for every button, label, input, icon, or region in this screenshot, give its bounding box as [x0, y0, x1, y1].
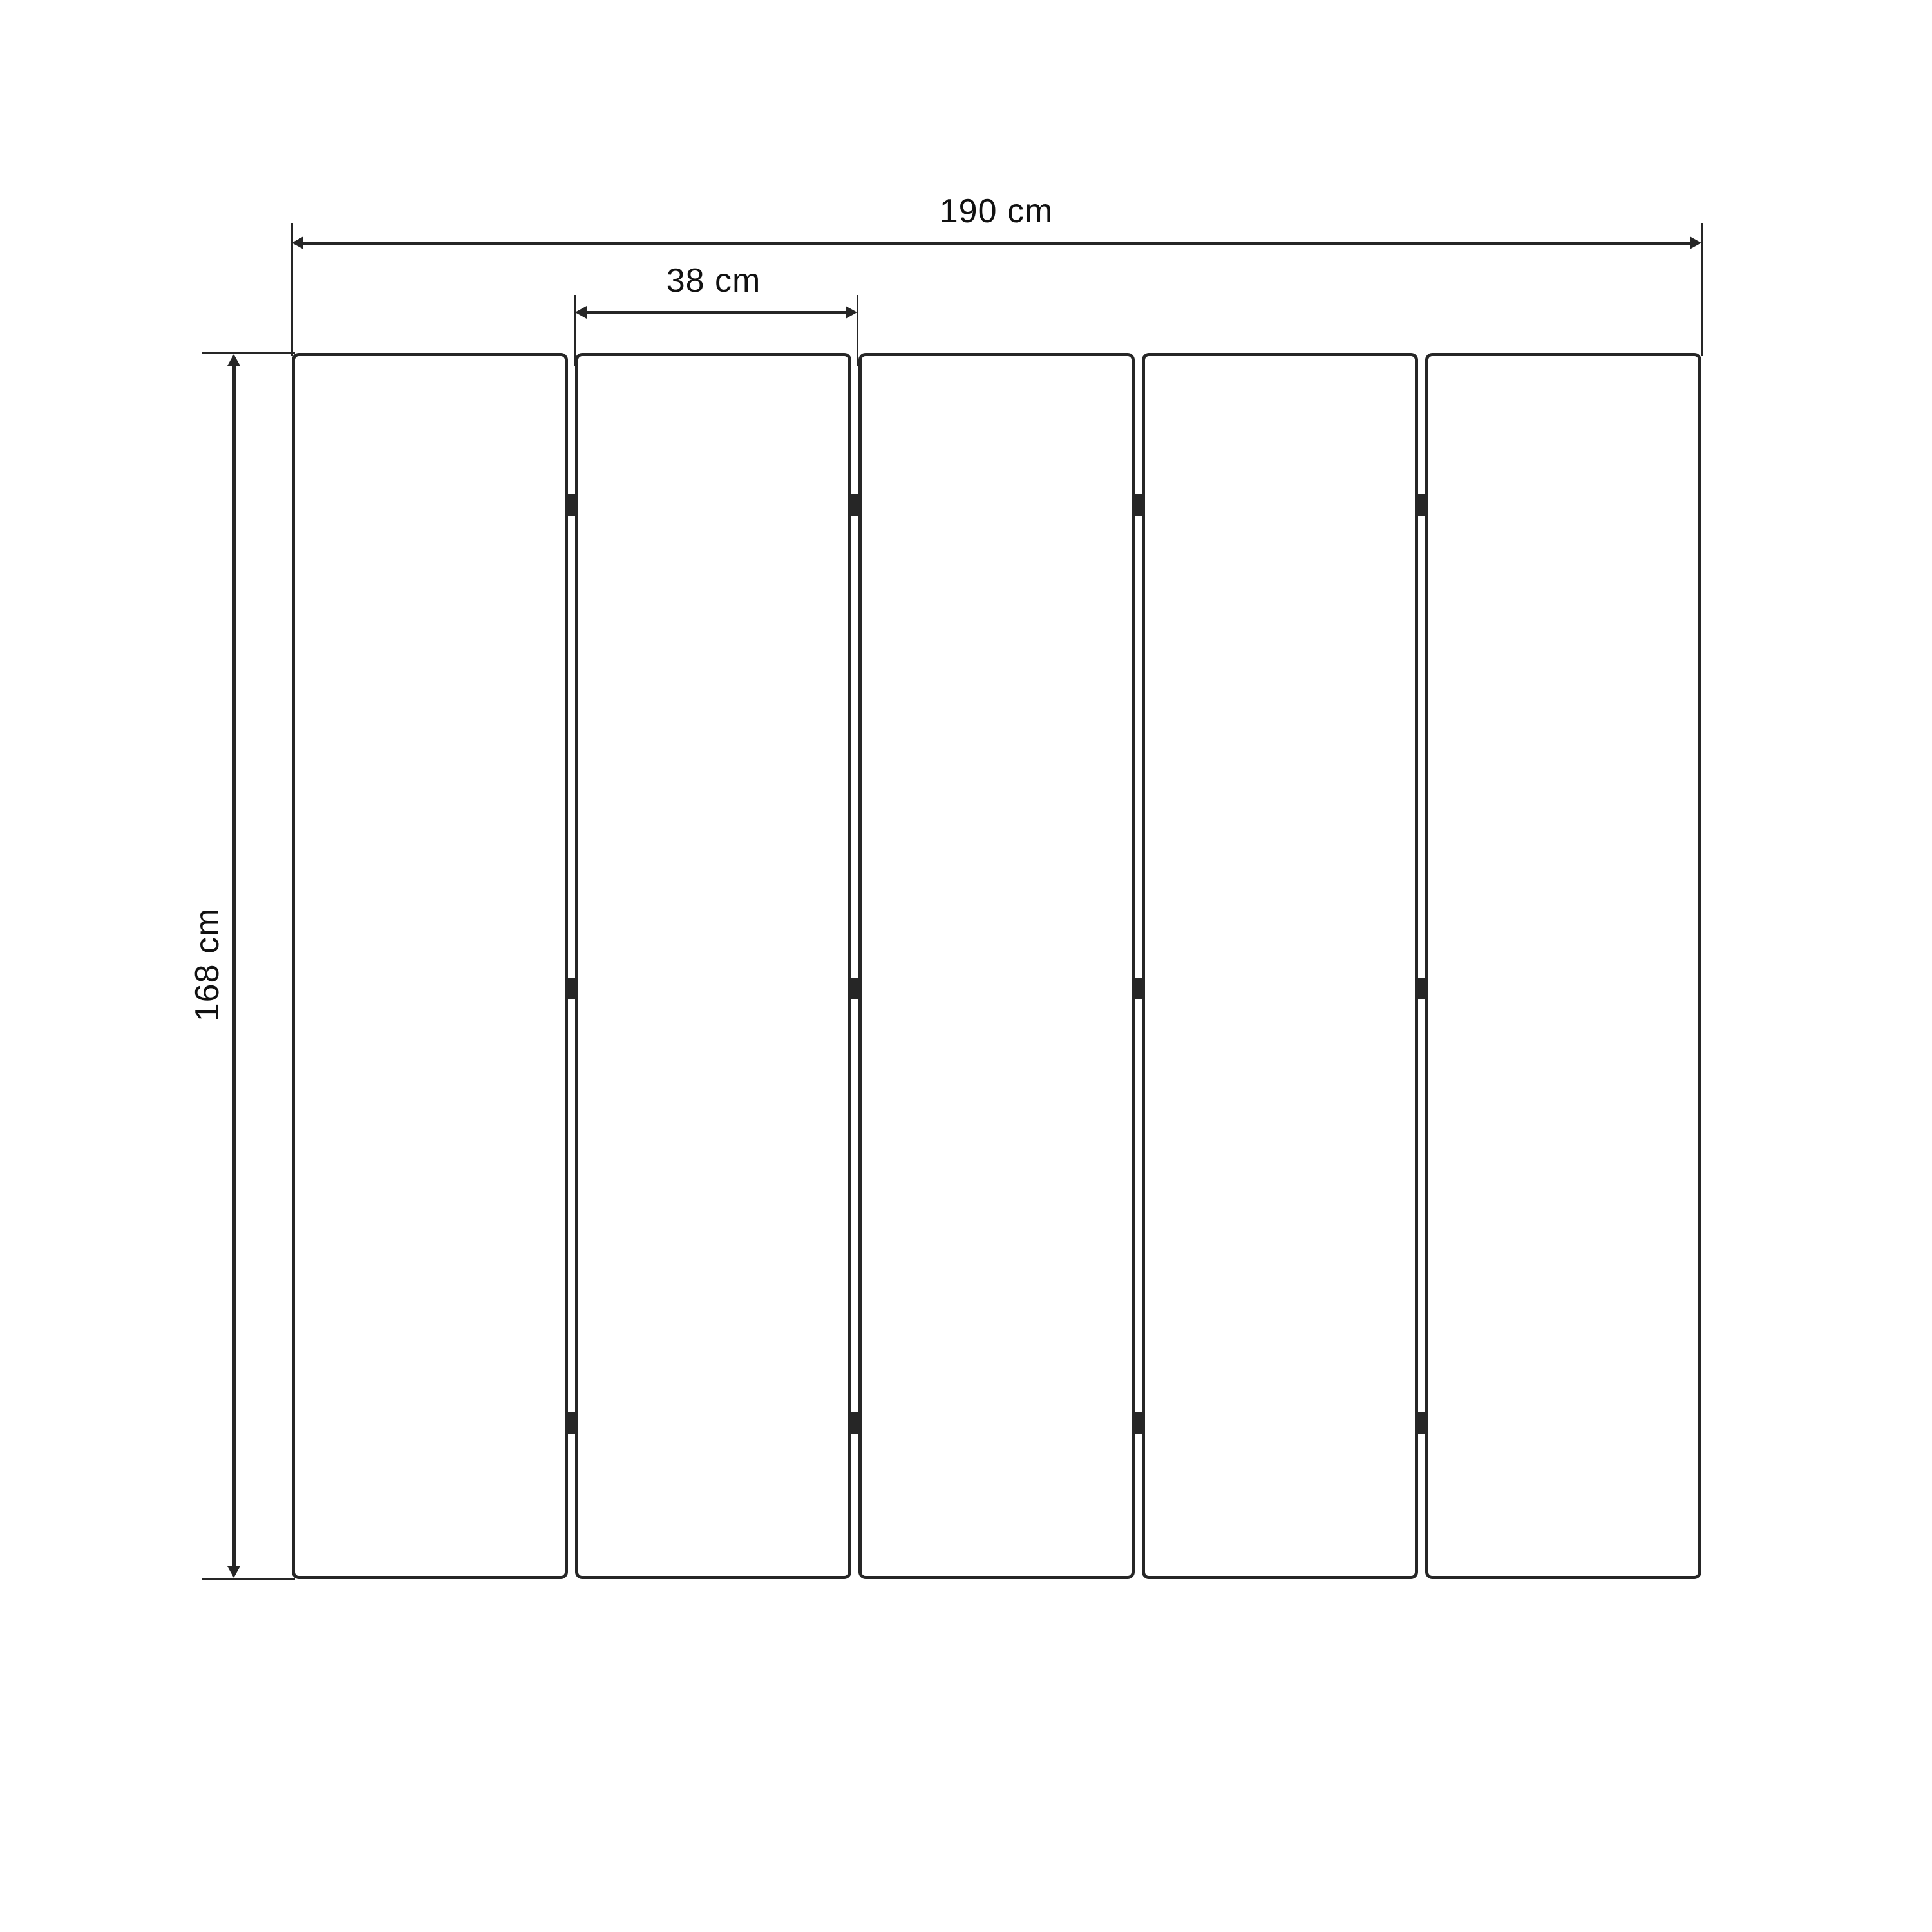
screen-panel-2	[575, 353, 851, 1579]
arrowhead-left-icon	[575, 306, 587, 319]
arrowhead-up-icon	[227, 354, 240, 366]
screen-panel-1	[292, 353, 568, 1579]
dimension-line-height	[232, 362, 236, 1570]
arrowhead-down-icon	[227, 1566, 240, 1578]
hinge-gap1-1	[567, 494, 576, 516]
screen-panel-5	[1425, 353, 1701, 1579]
dimension-line-panel-width	[583, 311, 849, 314]
hinge-gap3-2	[1133, 978, 1143, 999]
dimension-line-total-width	[299, 241, 1690, 245]
panel-width-label: 38 cm	[667, 261, 761, 300]
extension-line-height-top	[202, 352, 295, 354]
hinge-gap4-3	[1417, 1412, 1426, 1434]
arrowhead-left-icon	[292, 236, 303, 249]
hinge-gap1-3	[567, 1412, 576, 1434]
dimension-diagram: 190 cm 38 cm 168 cm	[0, 0, 1932, 1932]
hinge-gap4-2	[1417, 978, 1426, 999]
arrowhead-right-icon	[846, 306, 857, 319]
hinge-gap2-1	[850, 494, 860, 516]
hinge-gap2-2	[850, 978, 860, 999]
height-label: 168 cm	[188, 908, 227, 1022]
hinge-gap4-1	[1417, 494, 1426, 516]
total-width-label: 190 cm	[940, 192, 1054, 231]
arrowhead-right-icon	[1690, 236, 1701, 249]
hinge-gap2-3	[850, 1412, 860, 1434]
hinge-gap1-2	[567, 978, 576, 999]
screen-panel-4	[1142, 353, 1418, 1579]
hinge-gap3-3	[1133, 1412, 1143, 1434]
extension-line-height-bottom	[202, 1578, 295, 1580]
hinge-gap3-1	[1133, 494, 1143, 516]
screen-panel-3	[858, 353, 1135, 1579]
